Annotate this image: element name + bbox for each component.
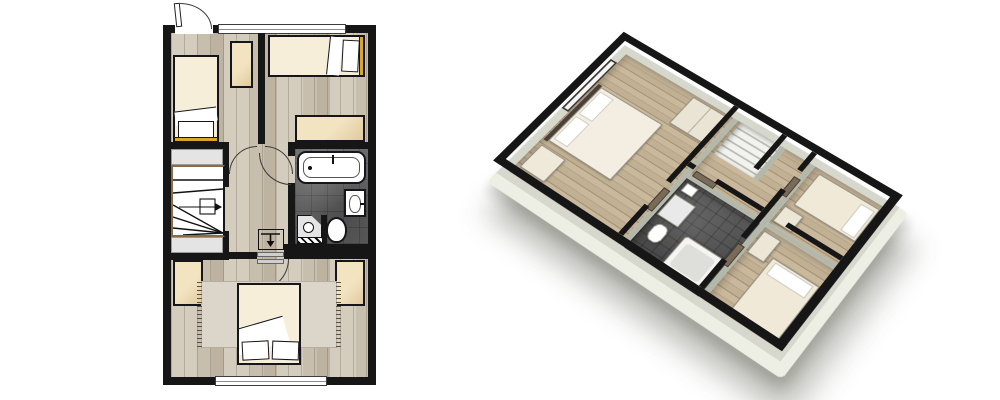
pillow-left xyxy=(242,340,270,360)
wall-top-right-room-bottom xyxy=(295,142,368,149)
plan-2d xyxy=(163,3,376,385)
floorplan-screenshot xyxy=(0,0,1000,400)
wall-top-left-room-bottom xyxy=(171,142,229,149)
exterior-wall-right xyxy=(368,25,376,385)
top-window xyxy=(218,24,346,34)
bathroom-left-wall-lower xyxy=(288,183,295,244)
master-bedroom-top-wall-left xyxy=(171,252,257,259)
winder-staircase xyxy=(171,165,225,237)
wall-top-stairs xyxy=(753,134,787,171)
bed-headboard xyxy=(359,37,363,75)
stair-landing-top xyxy=(171,149,223,165)
wall-top-a2 xyxy=(618,204,649,236)
rug-fringe-right xyxy=(336,282,341,347)
wall-top-ne xyxy=(618,32,902,202)
wall-top-sw xyxy=(493,155,788,352)
radiator xyxy=(297,237,323,244)
wall-between-top-bedrooms xyxy=(258,33,265,144)
bathtub-faucet xyxy=(332,155,334,164)
single-bed-top-left xyxy=(173,55,219,143)
bed-frame-trim xyxy=(175,137,217,141)
shower-drain xyxy=(303,222,314,233)
toilet xyxy=(326,217,347,243)
stair-landing-bottom xyxy=(171,237,223,253)
bathtub xyxy=(297,151,366,184)
exterior-wall-left xyxy=(163,25,171,385)
sideboard xyxy=(295,115,365,142)
threshold-strip xyxy=(257,252,284,257)
wash-basin xyxy=(344,189,366,217)
threshold-strip xyxy=(257,259,284,264)
wall-top-se xyxy=(774,191,903,352)
wall-top-b3 xyxy=(699,258,728,289)
tall-wardrobe xyxy=(230,41,253,88)
bed-pillow xyxy=(341,40,360,73)
wall-top-divider xyxy=(785,222,844,260)
stair-direction-arrow xyxy=(215,203,222,211)
wall-top-b1 xyxy=(797,151,817,172)
down-arrow-symbol xyxy=(259,230,282,248)
bottom-window xyxy=(215,376,327,386)
bed-foot-pillow xyxy=(178,121,214,138)
wall-top-b2 xyxy=(741,188,786,239)
wall-top-bath2 xyxy=(714,179,764,212)
stair-treads xyxy=(173,167,223,235)
bathtub-drain xyxy=(308,166,312,170)
entry-door-swing-arc xyxy=(180,3,212,29)
basin-faucet xyxy=(360,203,365,205)
pillow-right xyxy=(272,341,300,361)
double-bed xyxy=(237,283,301,365)
plan-3d xyxy=(496,45,899,362)
single-bed-top-right xyxy=(268,35,365,77)
rug-fringe-left xyxy=(197,282,202,347)
bathroom-bottom-wall xyxy=(284,244,368,259)
direction-arrow-box xyxy=(258,229,284,250)
